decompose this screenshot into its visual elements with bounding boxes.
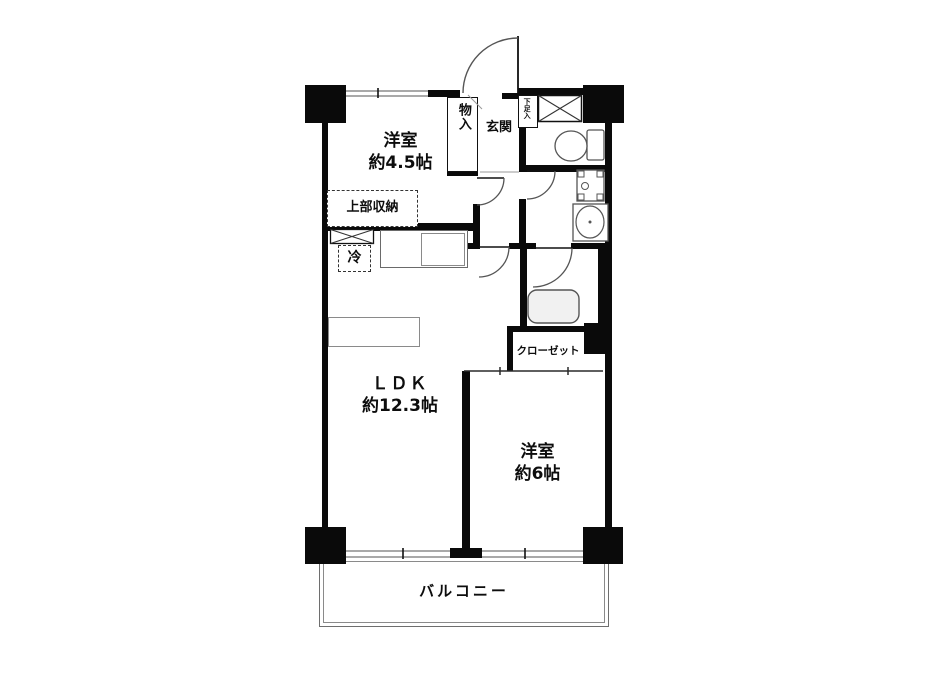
wall-segment	[502, 93, 519, 99]
refrigerator-label: 冷	[348, 249, 362, 267]
wash-basin-fixture	[573, 204, 608, 241]
wall-segment	[507, 326, 587, 332]
window-ldk-south	[346, 550, 450, 558]
upper-storage-label: 上部収納	[346, 200, 398, 217]
entrance-label: 玄関	[479, 120, 519, 137]
wall-segment	[428, 90, 460, 97]
window-top	[346, 90, 428, 97]
bedroom2-label: 洋室 約6帖	[470, 437, 605, 489]
bedroom1-size: 約4.5帖	[368, 152, 432, 174]
wall-segment	[519, 199, 526, 249]
wall-segment	[520, 249, 527, 330]
bedroom2-size: 約6帖	[515, 463, 561, 485]
bedroom1-label: 洋室 約4.5帖	[328, 124, 473, 180]
kitchen-sink	[421, 233, 465, 266]
closet-label: クローゼット	[513, 345, 583, 359]
window-bedroom2-south	[482, 550, 583, 558]
toilet-fixture	[555, 130, 604, 161]
pillar	[583, 85, 624, 123]
wall-segment	[584, 323, 611, 354]
bedroom2-name: 洋室	[521, 441, 555, 463]
storage-label: 物入	[454, 103, 471, 131]
wall-segment	[518, 88, 584, 95]
shoe-cabinet-label: 下足入	[522, 98, 531, 119]
wall-segment	[598, 243, 611, 329]
pillar	[583, 527, 623, 564]
floorplan-canvas: バルコニー 上部収納 冷	[0, 0, 934, 688]
pipe-space-x-box	[331, 230, 374, 244]
sliding-door-line	[464, 367, 603, 375]
pillar	[450, 548, 482, 558]
pillar	[305, 85, 346, 123]
bathtub-fixture	[528, 290, 579, 323]
balcony-rail: バルコニー	[323, 561, 605, 623]
pillar	[305, 527, 346, 564]
ldk-name: ＬＤＫ	[372, 373, 429, 395]
upper-storage-box: 上部収納	[327, 190, 418, 227]
ldk-counter	[328, 317, 420, 347]
refrigerator-box: 冷	[338, 245, 371, 272]
washing-machine-fixture	[577, 170, 604, 201]
bathroom-door-icon	[533, 248, 572, 287]
ldk-size: 約12.3帖	[362, 395, 438, 417]
bedroom1-door-icon	[477, 178, 504, 205]
ldk-label: ＬＤＫ 約12.3帖	[330, 370, 470, 420]
ldk-door-icon	[479, 247, 509, 277]
wall-segment	[519, 128, 526, 172]
bedroom1-name: 洋室	[384, 130, 418, 152]
entrance-door-icon	[463, 36, 518, 93]
washroom-door-icon	[527, 171, 555, 199]
wall-segment	[526, 165, 606, 172]
balcony-area: バルコニー	[319, 557, 609, 627]
shoe-storage-x-box	[539, 96, 582, 122]
balcony-label: バルコニー	[419, 582, 509, 602]
